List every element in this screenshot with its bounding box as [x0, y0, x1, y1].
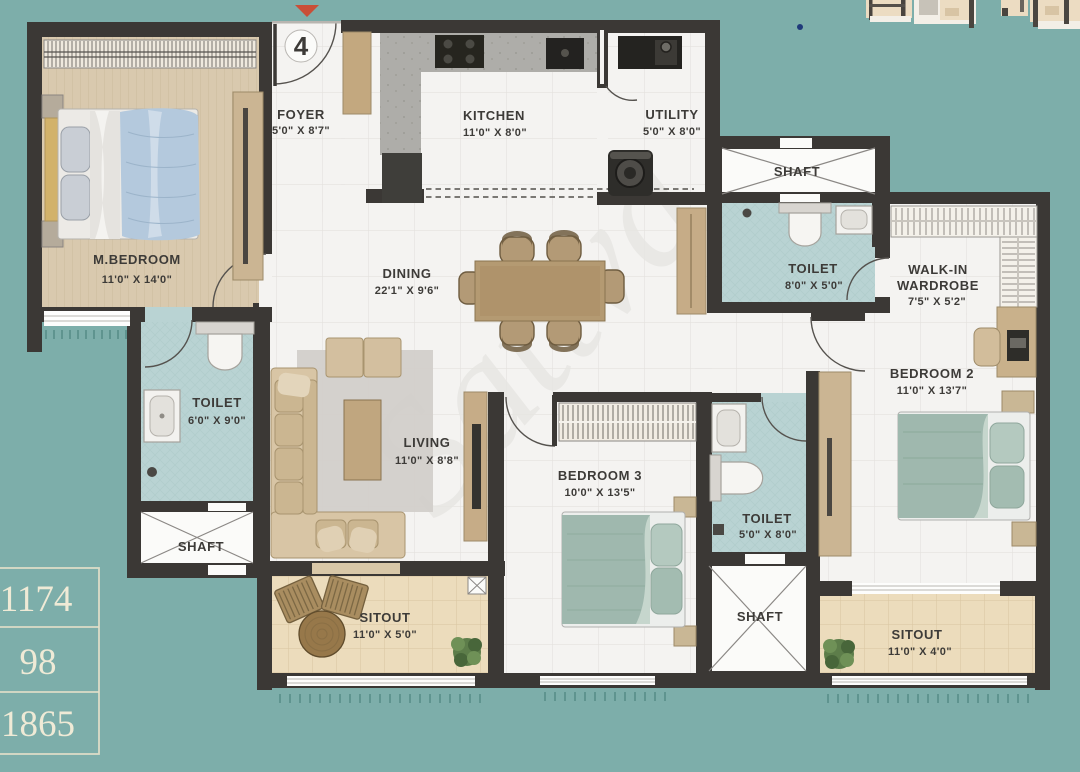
svg-text:UTILITY: UTILITY	[645, 107, 698, 122]
svg-text:BEDROOM 3: BEDROOM 3	[558, 468, 642, 483]
svg-text:11'0" X 8'8": 11'0" X 8'8"	[395, 455, 459, 467]
svg-text:BEDROOM 2: BEDROOM 2	[890, 366, 974, 381]
svg-text:WARDROBE: WARDROBE	[897, 278, 979, 293]
svg-text:7'5" X 5'2": 7'5" X 5'2"	[908, 296, 966, 308]
svg-text:SHAFT: SHAFT	[178, 539, 224, 554]
svg-text:22'1" X 9'6": 22'1" X 9'6"	[375, 285, 440, 297]
svg-text:TOILET: TOILET	[788, 261, 838, 276]
svg-text:SITOUT: SITOUT	[359, 610, 410, 625]
svg-text:6'0" X 9'0": 6'0" X 9'0"	[188, 415, 246, 427]
svg-text:10'0" X 13'5": 10'0" X 13'5"	[564, 487, 635, 499]
svg-text:11'0" X 14'0": 11'0" X 14'0"	[102, 274, 172, 286]
svg-text:DINING: DINING	[382, 266, 431, 281]
svg-text:5'0" X 8'0": 5'0" X 8'0"	[739, 529, 797, 541]
svg-text:11'0" X 13'7": 11'0" X 13'7"	[897, 385, 967, 397]
svg-text:TOILET: TOILET	[192, 395, 242, 410]
svg-text:11'0" X 5'0": 11'0" X 5'0"	[353, 629, 417, 641]
svg-text:M.BEDROOM: M.BEDROOM	[93, 252, 181, 267]
svg-text:FOYER: FOYER	[277, 107, 325, 122]
svg-text:1865: 1865	[1, 704, 75, 745]
svg-text:11'0" X 8'0": 11'0" X 8'0"	[463, 127, 527, 139]
svg-text:8'0" X 5'0": 8'0" X 5'0"	[785, 280, 843, 292]
svg-text:4: 4	[294, 31, 309, 61]
svg-text:98: 98	[20, 642, 57, 683]
svg-text:TOILET: TOILET	[742, 511, 792, 526]
svg-text:SHAFT: SHAFT	[737, 609, 783, 624]
svg-text:WALK-IN: WALK-IN	[908, 262, 968, 277]
svg-text:5'0" X 8'7": 5'0" X 8'7"	[272, 125, 330, 137]
svg-text:11'0" X 4'0": 11'0" X 4'0"	[888, 646, 952, 658]
svg-text:LIVING: LIVING	[404, 435, 451, 450]
svg-text:KITCHEN: KITCHEN	[463, 108, 525, 123]
svg-text:SHAFT: SHAFT	[774, 164, 820, 179]
svg-text:SITOUT: SITOUT	[891, 627, 942, 642]
svg-text:5'0" X 8'0": 5'0" X 8'0"	[643, 126, 701, 138]
svg-text:1174: 1174	[0, 579, 72, 620]
